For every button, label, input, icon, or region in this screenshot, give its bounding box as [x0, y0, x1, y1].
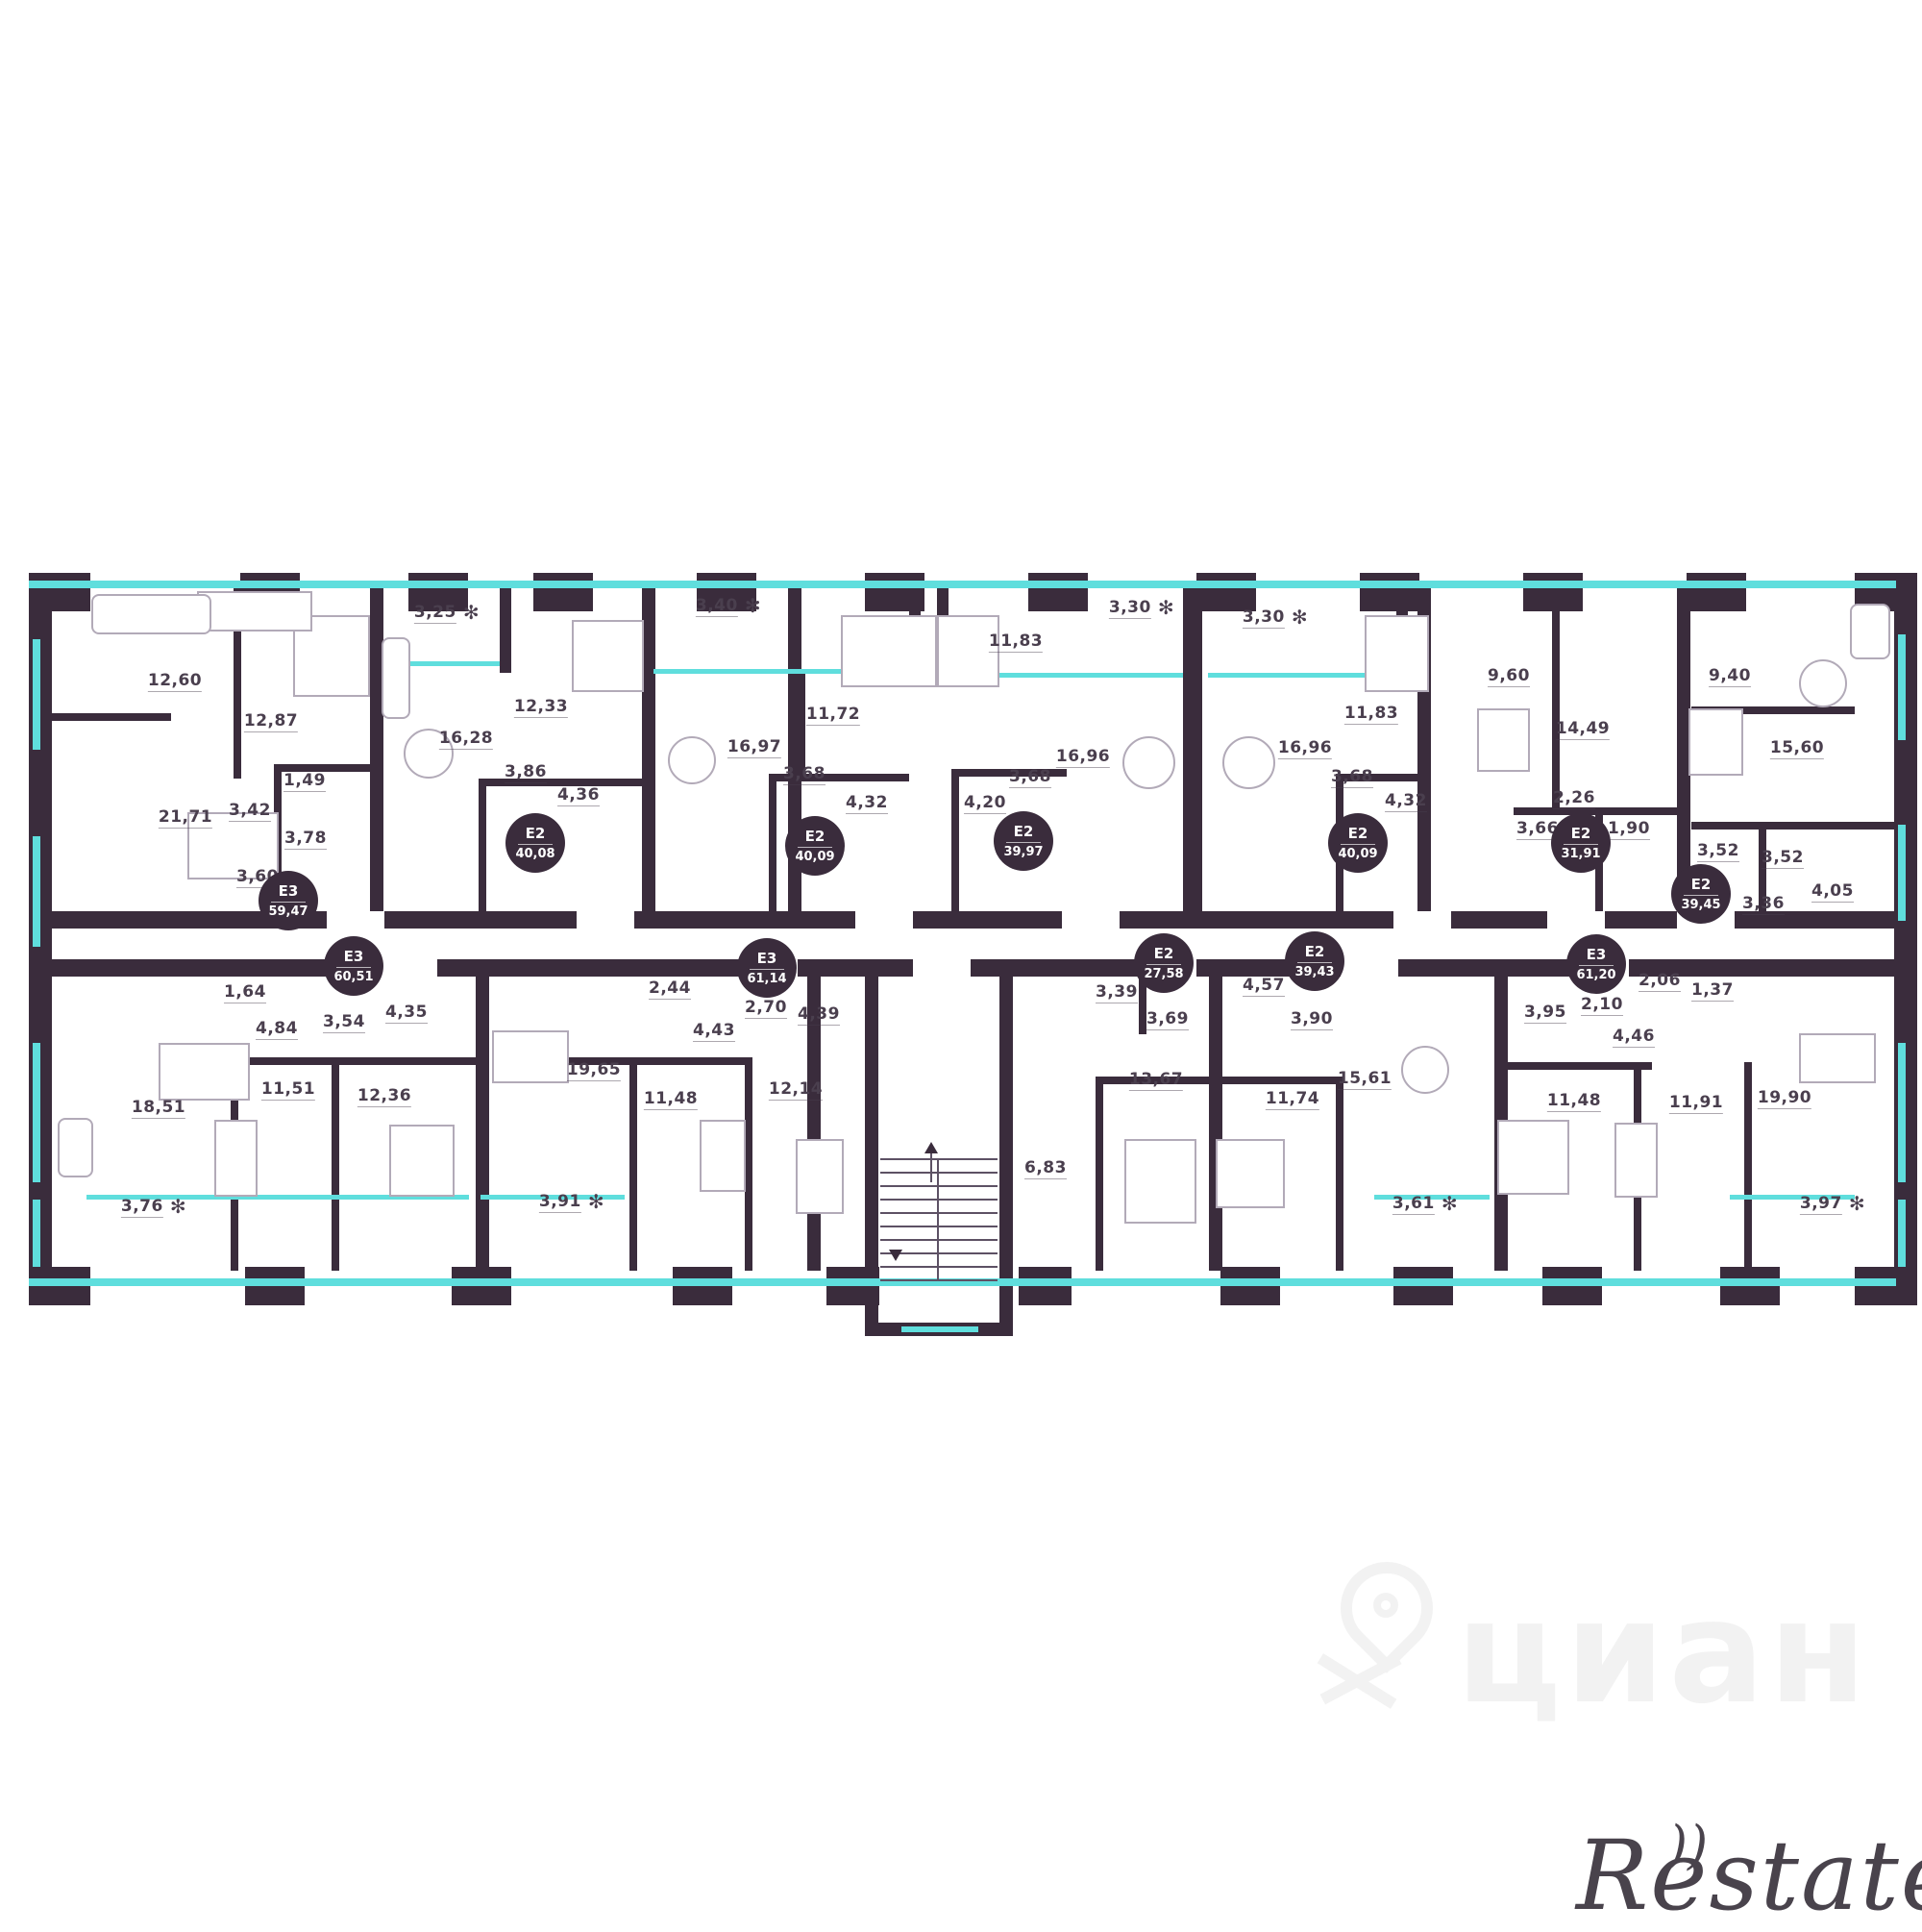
room-area-label: 3,68 — [1009, 767, 1051, 786]
bed-icon — [700, 1120, 746, 1192]
room-area-label: 3,78 — [284, 829, 327, 848]
room-area-label: 12,60 — [148, 671, 202, 690]
unit-badge-unit-1: Е359,47 — [259, 871, 318, 930]
unit-badge-unit-7: Е239,45 — [1671, 864, 1731, 924]
room-area-label: 1,64 — [224, 982, 266, 1002]
room-area-value: 11,48 — [1547, 1091, 1601, 1112]
room-area-label: 2,70 — [745, 998, 787, 1017]
room-area-label: 4,57 — [1243, 976, 1285, 995]
room-area-label: 6,83 — [1024, 1158, 1067, 1177]
snowflake-icon: ✻ — [745, 594, 761, 617]
wall-segment — [745, 1057, 752, 1271]
room-area-value: 2,70 — [745, 998, 787, 1019]
unit-badge-unit-11: Е239,43 — [1285, 931, 1344, 991]
room-area-label: 2,44 — [649, 978, 691, 998]
unit-area: 60,51 — [333, 971, 373, 983]
unit-badge-unit-8: Е360,51 — [324, 936, 383, 996]
room-area-value: 4,36 — [557, 785, 600, 806]
table-icon — [197, 591, 312, 632]
wall-segment — [769, 774, 776, 911]
room-area-value: 1,90 — [1608, 819, 1650, 840]
room-area-label: 11,91 — [1669, 1093, 1723, 1112]
stair-step — [880, 1199, 998, 1201]
table-round-icon — [1122, 736, 1175, 789]
wall-segment — [642, 588, 655, 911]
room-area-value: 19,90 — [1758, 1088, 1811, 1109]
floorplan-canvas: 12,6012,8721,713,421,493,783,60Е359,473,… — [0, 0, 1922, 1922]
wall-segment — [332, 1057, 339, 1271]
window-strip — [901, 1326, 978, 1332]
unit-area: 27,58 — [1144, 968, 1183, 980]
room-area-value: 1,49 — [283, 771, 326, 792]
stair-rail — [937, 1158, 939, 1281]
bed-icon — [1688, 708, 1743, 776]
room-area-label: 18,51 — [132, 1098, 185, 1117]
room-area-value: 3,86 — [505, 762, 547, 783]
room-area-label: 4,20 — [964, 793, 1006, 812]
unit-badge-unit-4: Е239,97 — [994, 811, 1053, 871]
room-area-label: 4,35 — [385, 1003, 428, 1022]
room-area-value: 4,57 — [1243, 976, 1285, 997]
wall-segment — [384, 911, 577, 929]
room-area-value: 15,60 — [1770, 738, 1824, 759]
room-area-label: 4,84 — [256, 1019, 298, 1038]
unit-type: Е3 — [271, 884, 306, 903]
room-area-label: 19,65 — [567, 1060, 621, 1079]
table-icon — [492, 1030, 569, 1083]
room-area-value: 4,05 — [1811, 881, 1854, 903]
room-area-value: 4,32 — [846, 793, 888, 814]
room-area-label: 1,37 — [1691, 980, 1734, 1000]
wall-segment — [798, 959, 913, 977]
window-strip — [1898, 634, 1906, 740]
wall-segment — [1096, 1077, 1103, 1271]
room-area-label: 3,40✻ — [696, 594, 761, 617]
wall-segment — [798, 673, 805, 774]
room-area-label: 3,54 — [323, 1012, 365, 1031]
room-area-value: 19,65 — [567, 1060, 621, 1081]
room-area-value: 9,40 — [1709, 666, 1751, 687]
room-area-value: 12,87 — [244, 711, 298, 732]
room-area-value: 3,97 — [1800, 1194, 1842, 1215]
unit-type: Е2 — [1297, 945, 1332, 963]
room-area-value: 11,83 — [989, 632, 1043, 653]
wall-segment — [1120, 911, 1393, 929]
wall-segment — [437, 959, 740, 977]
bed-icon — [1497, 1120, 1569, 1195]
room-area-value: 3,95 — [1524, 1003, 1566, 1024]
table-icon — [159, 1043, 250, 1101]
room-area-label: 2,10 — [1581, 995, 1623, 1014]
room-area-label: 1,49 — [283, 771, 326, 790]
unit-area: 39,97 — [1003, 846, 1043, 858]
room-area-value: 11,83 — [1344, 704, 1398, 725]
window-strip — [29, 581, 1896, 588]
room-area-value: 3,68 — [783, 764, 825, 785]
room-area-value: 12,60 — [148, 671, 202, 692]
room-area-label: 3,25✻ — [414, 601, 480, 624]
room-area-value: 4,20 — [964, 793, 1006, 814]
wall-segment — [1744, 1062, 1752, 1271]
room-area-value: 2,44 — [649, 978, 691, 1000]
table-icon — [1799, 1033, 1876, 1083]
unit-type: Е2 — [1006, 825, 1041, 843]
room-area-value: 3,36 — [1742, 894, 1785, 915]
room-area-label: 3,42 — [229, 801, 271, 820]
room-area-value: 12,36 — [357, 1086, 411, 1107]
room-area-label: 3,30✻ — [1109, 596, 1174, 619]
room-area-value: 3,76 — [121, 1197, 163, 1218]
room-area-label: 15,60 — [1770, 738, 1824, 757]
bed-icon — [572, 620, 644, 692]
room-area-value: 3,52 — [1697, 841, 1739, 862]
room-area-value: 3,78 — [284, 829, 327, 850]
wall-segment — [1542, 1267, 1602, 1305]
room-area-value: 3,61 — [1392, 1194, 1435, 1215]
room-area-value: 11,51 — [261, 1079, 315, 1101]
restate-swash-icon: )) — [1667, 1815, 1708, 1875]
unit-type: Е2 — [798, 830, 832, 848]
room-area-label: 4,32 — [1385, 791, 1427, 810]
room-area-label: 3,36 — [1742, 894, 1785, 913]
room-area-label: 11,72 — [806, 705, 860, 724]
wall-segment — [370, 588, 383, 911]
room-area-label: 4,05 — [1811, 881, 1854, 901]
unit-area: 39,45 — [1681, 899, 1720, 911]
room-area-value: 13,67 — [1129, 1070, 1183, 1091]
room-area-value: 4,43 — [693, 1021, 735, 1042]
unit-badge-unit-6: Е231,91 — [1551, 813, 1611, 873]
unit-area: 40,09 — [795, 851, 834, 863]
room-area-label: 13,67 — [1129, 1070, 1183, 1089]
window-strip — [33, 1200, 40, 1267]
snowflake-icon: ✻ — [170, 1195, 186, 1218]
wall-segment — [1019, 1267, 1072, 1305]
unit-badge-unit-12: Е361,20 — [1566, 934, 1626, 994]
wall-segment — [629, 1057, 637, 1271]
restate-logo-text: Restate — [1576, 1820, 1922, 1932]
bed-icon — [1477, 708, 1530, 772]
sofa-icon — [1850, 604, 1890, 659]
bed-icon — [1614, 1123, 1658, 1198]
window-strip — [33, 836, 40, 947]
stair-step — [880, 1212, 998, 1214]
wall-segment — [533, 573, 593, 611]
room-area-label: 3,95 — [1524, 1003, 1566, 1022]
sofa-icon — [58, 1118, 93, 1177]
wall-segment — [1451, 911, 1547, 929]
stair-arrow-stem — [930, 1153, 932, 1182]
table-round-icon — [668, 736, 716, 784]
wall-segment — [971, 959, 1139, 977]
map-pin-dot-icon — [1373, 1593, 1398, 1618]
room-area-label: 9,60 — [1488, 666, 1530, 685]
wall-segment — [1393, 1267, 1453, 1305]
room-area-label: 1,90 — [1608, 819, 1650, 838]
room-area-value: 4,35 — [385, 1003, 428, 1024]
wall-segment — [245, 1267, 305, 1305]
window-strip — [33, 639, 40, 750]
unit-type: Е2 — [1146, 947, 1181, 965]
bed-icon — [1216, 1139, 1285, 1208]
wall-segment — [1508, 1062, 1652, 1070]
unit-badge-unit-9: Е361,14 — [737, 938, 797, 998]
room-area-label: 3,61✻ — [1392, 1192, 1458, 1215]
wall-segment — [452, 1267, 511, 1305]
room-area-value: 3,25 — [414, 603, 456, 624]
snowflake-icon: ✻ — [1441, 1192, 1458, 1215]
wall-segment — [1552, 588, 1560, 807]
room-area-value: 11,48 — [644, 1089, 698, 1110]
room-area-value: 3,90 — [1291, 1009, 1333, 1030]
room-area-label: 12,33 — [514, 697, 568, 716]
wall-segment — [476, 977, 489, 1271]
wall-segment — [1605, 911, 1677, 929]
room-area-label: 16,96 — [1278, 738, 1332, 757]
snowflake-icon: ✻ — [588, 1190, 604, 1213]
room-area-value: 15,61 — [1338, 1069, 1392, 1090]
room-area-label: 15,61 — [1338, 1069, 1392, 1088]
room-area-label: 4,32 — [846, 793, 888, 812]
stair-step — [880, 1185, 998, 1187]
table-round-icon — [1401, 1046, 1449, 1094]
sofa-icon — [382, 637, 410, 719]
cian-watermark: циан — [1331, 1562, 1783, 1754]
room-area-value: 2,26 — [1553, 788, 1595, 809]
table-round-icon — [1799, 659, 1847, 707]
snowflake-icon: ✻ — [1292, 606, 1308, 629]
room-area-value: 12,14 — [769, 1079, 823, 1101]
unit-area: 61,14 — [747, 973, 786, 985]
bed-icon — [796, 1139, 844, 1214]
wall-segment — [913, 911, 1062, 929]
room-area-label: 3,52 — [1762, 848, 1804, 867]
room-area-label: 16,96 — [1056, 747, 1110, 766]
window-strip — [33, 1043, 40, 1182]
bed-icon — [389, 1125, 455, 1197]
unit-badge-unit-3: Е240,09 — [785, 816, 845, 876]
unit-badge-unit-10: Е227,58 — [1134, 933, 1194, 993]
wall-segment — [1691, 822, 1894, 830]
room-area-value: 16,28 — [439, 729, 493, 750]
room-area-label: 3,76✻ — [121, 1195, 186, 1218]
room-area-label: 11,74 — [1266, 1089, 1319, 1108]
room-area-value: 16,96 — [1278, 738, 1332, 759]
room-area-value: 3,39 — [1096, 982, 1138, 1003]
room-area-label: 11,51 — [261, 1079, 315, 1099]
bed-icon — [841, 615, 937, 687]
room-area-value: 12,33 — [514, 697, 568, 718]
wall-segment — [50, 713, 171, 721]
unit-area: 31,91 — [1561, 848, 1600, 860]
stair-step — [880, 1158, 998, 1160]
window-strip — [1898, 1043, 1906, 1182]
table-round-icon — [1222, 736, 1275, 789]
wall-segment — [673, 1267, 732, 1305]
unit-area: 40,08 — [515, 848, 554, 860]
room-area-value: 4,84 — [256, 1019, 298, 1040]
unit-type: Е2 — [1564, 827, 1598, 845]
wall-segment — [1220, 1267, 1280, 1305]
room-area-value: 3,30 — [1109, 598, 1151, 619]
room-area-label: 3,68 — [783, 764, 825, 783]
wall-segment — [951, 769, 959, 911]
room-area-value: 4,46 — [1613, 1027, 1655, 1048]
room-area-label: 12,87 — [244, 711, 298, 731]
room-area-value: 2,06 — [1639, 971, 1681, 992]
unit-area: 39,43 — [1294, 966, 1334, 978]
room-area-label: 3,86 — [505, 762, 547, 781]
cian-watermark-text: циан — [1456, 1570, 1871, 1735]
stairs-down-arrow-icon — [889, 1250, 902, 1261]
room-area-label: 12,14 — [769, 1079, 823, 1099]
room-area-value: 11,91 — [1669, 1093, 1723, 1114]
room-area-value: 3,68 — [1331, 767, 1373, 788]
unit-type: Е3 — [336, 950, 371, 968]
wall-segment — [1360, 573, 1419, 611]
snowflake-icon: ✻ — [1158, 596, 1174, 619]
stair-step — [880, 1266, 998, 1268]
room-area-value: 2,10 — [1581, 995, 1623, 1016]
room-area-value: 3,52 — [1762, 848, 1804, 869]
snowflake-icon: ✻ — [463, 601, 480, 624]
stairs-up-arrow-icon — [924, 1142, 938, 1153]
unit-type: Е3 — [1579, 948, 1614, 966]
room-area-value: 4,32 — [1385, 791, 1427, 812]
unit-type: Е2 — [1341, 827, 1375, 845]
bed-icon — [214, 1120, 258, 1197]
sofa-icon — [91, 594, 211, 634]
wall-segment — [479, 779, 486, 911]
room-area-value: 3,54 — [323, 1012, 365, 1033]
room-area-value: 1,37 — [1691, 980, 1734, 1002]
room-area-label: 9,40 — [1709, 666, 1751, 685]
room-area-label: 3,30✻ — [1243, 606, 1308, 629]
room-area-value: 6,83 — [1024, 1158, 1067, 1179]
room-area-value: 3,30 — [1243, 607, 1285, 629]
unit-area: 59,47 — [268, 905, 308, 918]
unit-type: Е2 — [518, 827, 553, 845]
room-area-value: 11,74 — [1266, 1089, 1319, 1110]
room-area-label: 16,28 — [439, 729, 493, 748]
room-area-value: 16,96 — [1056, 747, 1110, 768]
window-strip — [1898, 1200, 1906, 1267]
unit-type: Е2 — [1684, 878, 1718, 896]
restate-logo: )) Restate — [1576, 1828, 1922, 1924]
room-area-label: 3,90 — [1291, 1009, 1333, 1028]
room-area-label: 4,39 — [798, 1004, 840, 1024]
bed-icon — [1124, 1139, 1196, 1224]
wall-segment — [1398, 959, 1571, 977]
room-area-value: 3,68 — [1009, 767, 1051, 788]
room-area-label: 3,68 — [1331, 767, 1373, 786]
room-area-label: 14,49 — [1556, 719, 1610, 738]
unit-badge-unit-2: Е240,08 — [505, 813, 565, 873]
room-area-label: 19,90 — [1758, 1088, 1811, 1107]
unit-type: Е3 — [750, 952, 784, 970]
room-area-value: 3,40 — [696, 596, 738, 617]
bed-icon — [1365, 615, 1429, 692]
wall-segment — [1222, 1077, 1336, 1084]
room-area-value: 3,42 — [229, 801, 271, 822]
room-area-label: 11,83 — [989, 632, 1043, 651]
room-area-label: 4,36 — [557, 785, 600, 805]
room-area-value: 11,72 — [806, 705, 860, 726]
stair-step — [880, 1226, 998, 1227]
room-area-label: 2,06 — [1639, 971, 1681, 990]
room-area-label: 3,97✻ — [1800, 1192, 1865, 1215]
room-area-label: 12,36 — [357, 1086, 411, 1105]
unit-area: 40,09 — [1338, 848, 1377, 860]
room-area-label: 11,83 — [1344, 704, 1398, 723]
room-area-label: 4,46 — [1613, 1027, 1655, 1046]
room-area-label: 3,69 — [1146, 1009, 1189, 1028]
window-strip — [1898, 825, 1906, 921]
unit-area: 61,20 — [1576, 969, 1615, 981]
room-area-value: 21,71 — [159, 807, 212, 829]
room-area-value: 16,97 — [727, 737, 781, 758]
wall-segment — [1028, 573, 1088, 611]
room-area-label: 16,97 — [727, 737, 781, 756]
room-area-label: 21,71 — [159, 807, 212, 827]
wall-segment — [1336, 1077, 1343, 1271]
stair-step — [880, 1239, 998, 1241]
stair-step — [880, 1279, 998, 1281]
room-area-label: 11,48 — [1547, 1091, 1601, 1110]
wall-segment — [1183, 588, 1202, 911]
room-area-value: 14,49 — [1556, 719, 1610, 740]
snowflake-icon: ✻ — [1849, 1192, 1865, 1215]
room-area-value: 3,69 — [1146, 1009, 1189, 1030]
room-area-value: 3,91 — [539, 1192, 581, 1213]
room-area-label: 11,48 — [644, 1089, 698, 1108]
stair-step — [880, 1172, 998, 1174]
wall-segment — [500, 588, 511, 673]
room-area-label: 2,26 — [1553, 788, 1595, 807]
room-area-label: 3,52 — [1697, 841, 1739, 860]
wall-segment — [634, 911, 855, 929]
room-area-label: 4,43 — [693, 1021, 735, 1040]
room-area-label: 3,91✻ — [539, 1190, 604, 1213]
wall-segment — [1687, 573, 1746, 611]
unit-badge-unit-5: Е240,09 — [1328, 813, 1388, 873]
room-area-value: 1,64 — [224, 982, 266, 1003]
wall-segment — [1209, 977, 1222, 1271]
room-area-label: 3,39 — [1096, 982, 1138, 1002]
room-area-value: 18,51 — [132, 1098, 185, 1119]
wall-segment — [1720, 1267, 1780, 1305]
room-area-value: 9,60 — [1488, 666, 1530, 687]
room-area-value: 4,39 — [798, 1004, 840, 1026]
